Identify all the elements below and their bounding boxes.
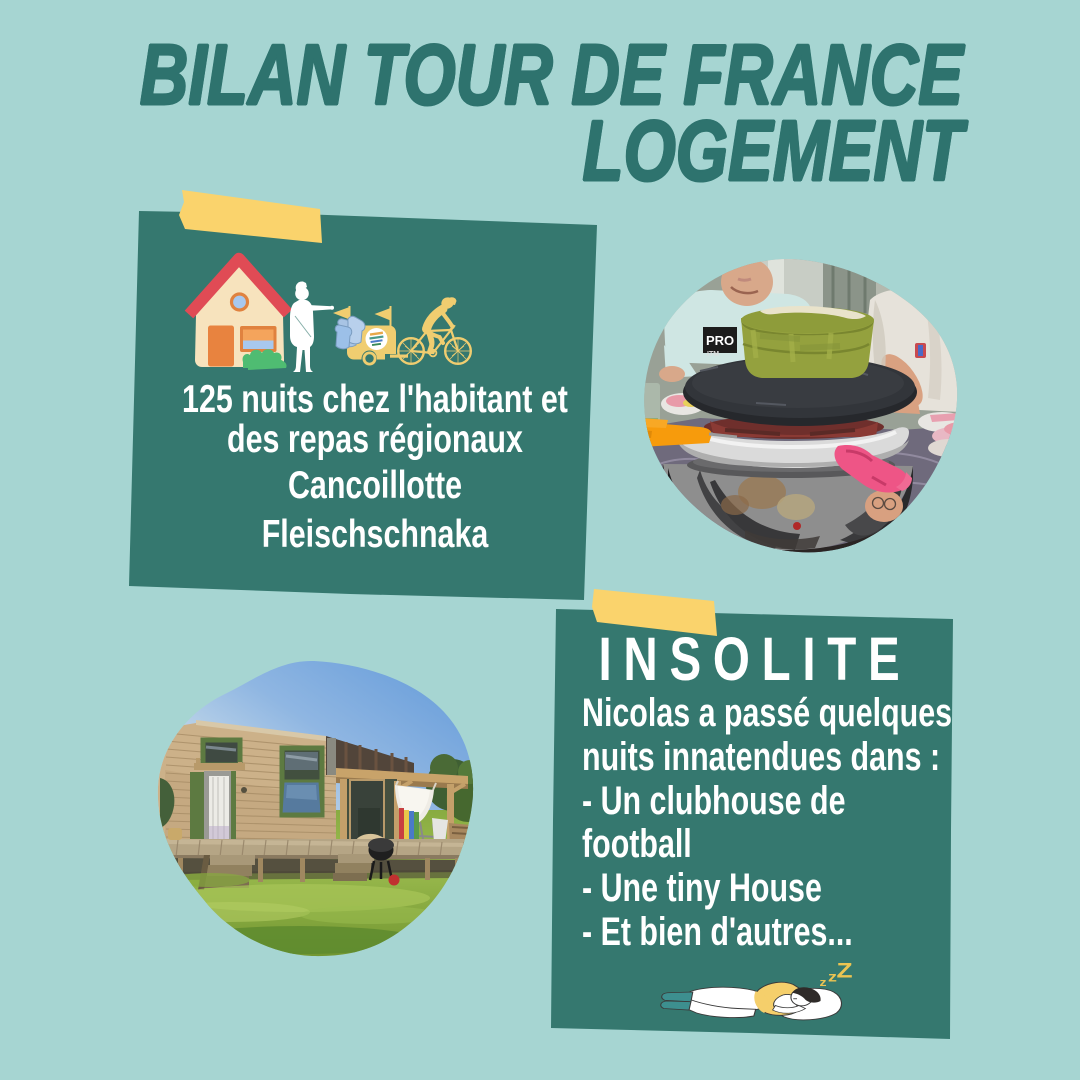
svg-text:ITM: ITM <box>707 351 719 358</box>
svg-text:z: z <box>820 975 827 988</box>
svg-text:Z: Z <box>836 959 852 983</box>
svg-text:PRO: PRO <box>706 333 734 348</box>
